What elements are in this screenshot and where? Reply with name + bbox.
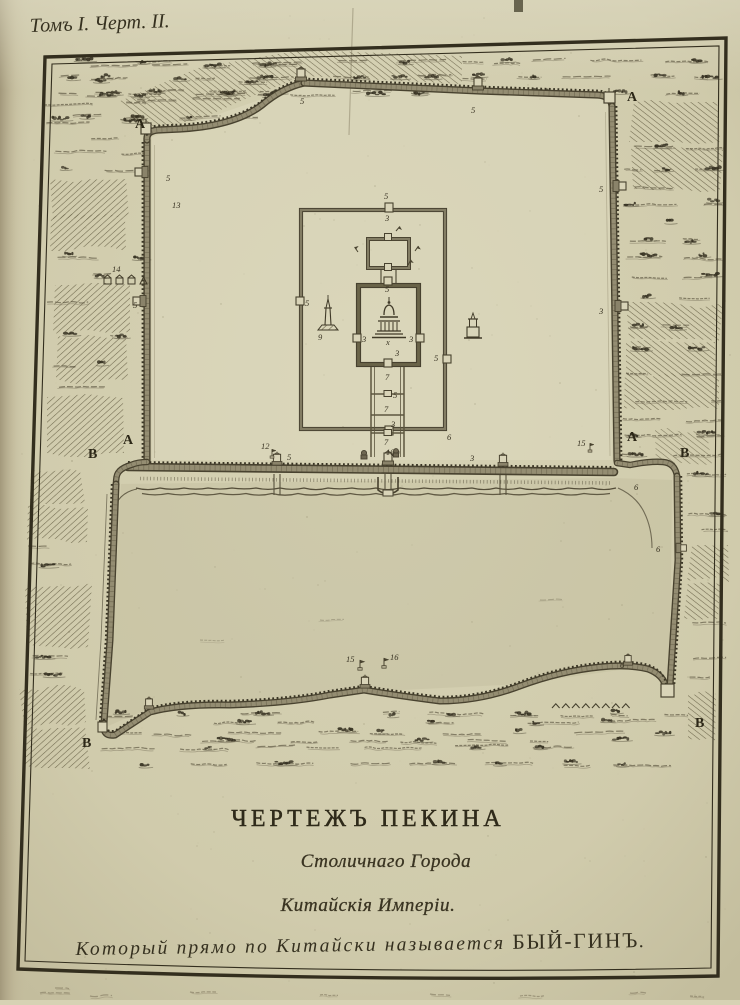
svg-text:B: B	[88, 447, 97, 462]
svg-text:5: 5	[385, 284, 389, 294]
svg-text:3: 3	[361, 334, 366, 344]
svg-text:5: 5	[133, 300, 137, 310]
svg-text:5: 5	[599, 184, 603, 194]
svg-text:16: 16	[390, 652, 399, 662]
svg-text:3: 3	[598, 306, 603, 316]
svg-text:3: 3	[394, 348, 399, 358]
svg-text:5: 5	[300, 96, 304, 106]
svg-text:5: 5	[471, 105, 475, 115]
svg-text:A: A	[135, 117, 146, 132]
svg-text:A: A	[627, 90, 638, 105]
svg-text:B: B	[695, 716, 704, 731]
svg-text:15: 15	[577, 438, 586, 448]
svg-text:5: 5	[384, 191, 388, 201]
svg-text:x: x	[385, 337, 390, 347]
svg-text:3: 3	[408, 334, 413, 344]
svg-text:ЧЕРТЕЖЪ ПЕКИНА: ЧЕРТЕЖЪ ПЕКИНА	[231, 806, 504, 832]
svg-text:5: 5	[434, 353, 438, 363]
svg-text:12: 12	[261, 441, 270, 451]
svg-text:Столичнаго Города: Столичнаго Города	[301, 851, 472, 872]
svg-text:A: A	[627, 430, 638, 445]
svg-text:3: 3	[384, 213, 389, 223]
svg-text:5: 5	[305, 298, 309, 308]
svg-text:13: 13	[172, 200, 181, 210]
svg-text:B: B	[680, 446, 689, 461]
svg-text:A: A	[123, 433, 134, 448]
svg-text:3: 3	[469, 453, 474, 463]
svg-text:Китайскія Имперіи.: Китайскія Имперіи.	[280, 895, 456, 916]
svg-text:15: 15	[346, 654, 355, 664]
svg-text:5: 5	[393, 390, 397, 400]
svg-text:B: B	[82, 736, 91, 751]
svg-text:14: 14	[112, 264, 121, 274]
svg-text:5: 5	[287, 452, 291, 462]
svg-text:5: 5	[166, 173, 170, 183]
svg-text:3: 3	[390, 419, 395, 429]
